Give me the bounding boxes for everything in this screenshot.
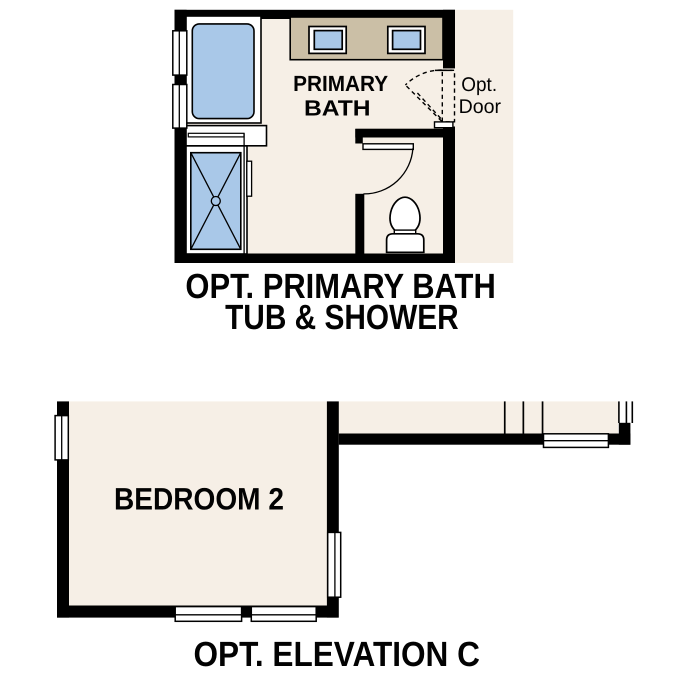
svg-text:PRIMARY: PRIMARY	[293, 71, 388, 96]
svg-text:TUB & SHOWER: TUB & SHOWER	[225, 298, 459, 337]
svg-text:Opt.: Opt.	[461, 74, 497, 96]
svg-text:BATH: BATH	[304, 96, 371, 121]
svg-text:BEDROOM 2: BEDROOM 2	[114, 481, 284, 516]
svg-text:OPT. ELEVATION C: OPT. ELEVATION C	[194, 635, 480, 674]
svg-text:Door: Door	[459, 96, 502, 118]
